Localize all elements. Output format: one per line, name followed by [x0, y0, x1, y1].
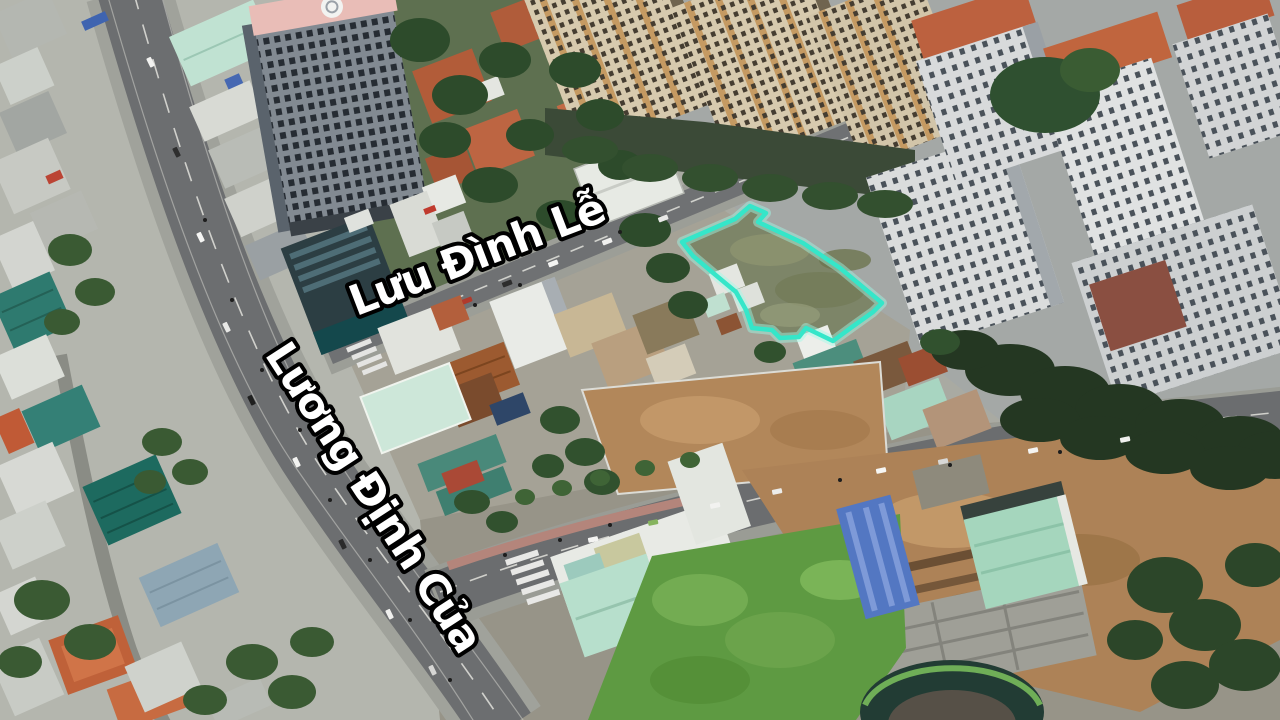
aerial-photo: Lưu Đình Lễ Lương Định Của [0, 0, 1280, 720]
